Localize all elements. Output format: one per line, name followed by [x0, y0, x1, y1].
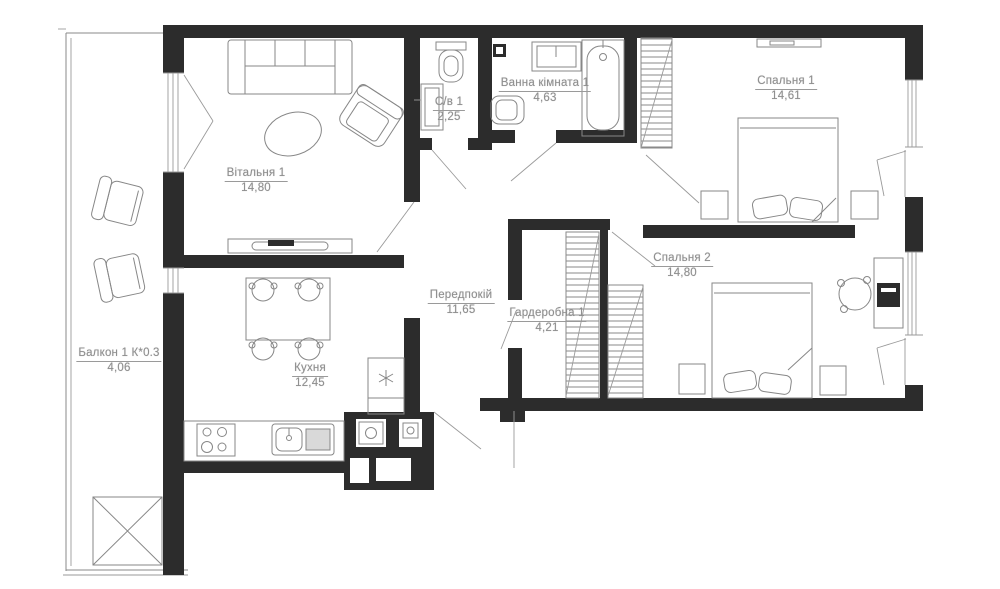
coffee-table-icon	[259, 105, 327, 163]
room-name: Гардеробна 1	[507, 307, 586, 322]
room-label-living: Вітальня 1 14,80	[225, 167, 288, 196]
kitchen-sink-icon	[272, 424, 334, 455]
room-name: Вітальня 1	[225, 167, 288, 182]
room-name: С/в 1	[433, 96, 465, 111]
room-area: 14,80	[651, 267, 713, 281]
room-name: Спальня 1	[755, 75, 817, 90]
room-area: 11,65	[428, 304, 495, 318]
window-bedroom1	[905, 80, 923, 147]
shelf-icon	[757, 39, 821, 47]
balcony-armchair-icon	[90, 175, 144, 229]
room-label-bathroom: Ванна кімната 1 4,63	[499, 77, 591, 106]
balcony-hatch-window-icon	[93, 497, 162, 565]
armchair-icon	[337, 83, 406, 150]
room-area: 4,21	[507, 322, 586, 336]
pillow-icon	[789, 197, 824, 222]
wardrobe-shelves-bedroom1	[641, 38, 672, 148]
room-label-bedroom2: Спальня 2 14,80	[651, 252, 713, 281]
room-label-wardrobe: Гардеробна 1 4,21	[507, 307, 586, 336]
room-label-balcony: Балкон 1 К*0.3 4,06	[76, 347, 161, 376]
nightstand-icon	[701, 191, 728, 219]
desk-icon	[874, 258, 903, 328]
nightstand-icon	[679, 364, 705, 394]
kitchen-chair-icon	[249, 338, 277, 360]
pillow-icon	[758, 372, 792, 395]
room-label-hallway: Передпокій 11,65	[428, 289, 495, 318]
nightstand-icon	[820, 366, 846, 395]
room-area: 4,06	[76, 362, 161, 376]
bed-icon	[712, 283, 812, 398]
walls	[163, 25, 923, 575]
bed-icon	[738, 118, 838, 222]
room-label-wc: С/в 1 2,25	[433, 96, 465, 125]
freezer-symbol-icon	[379, 370, 393, 386]
room-name: Передпокій	[428, 289, 495, 304]
balcony-door-bedroom1	[877, 150, 906, 197]
balcony-armchair-icon	[93, 251, 146, 303]
kitchen-chair-icon	[249, 279, 277, 301]
room-area: 14,80	[225, 182, 288, 196]
room-name: Кухня	[292, 362, 328, 377]
room-area: 14,61	[755, 90, 817, 104]
room-name: Балкон 1 К*0.3	[76, 347, 161, 362]
washbasin-icon	[532, 42, 581, 71]
stove-icon	[197, 424, 235, 456]
room-name: Спальня 2	[651, 252, 713, 267]
room-area: 4,63	[499, 92, 591, 106]
window-kitchen-balcony	[163, 268, 184, 293]
window-living-balcony	[163, 73, 213, 172]
room-label-bedroom1: Спальня 1 14,61	[755, 75, 817, 104]
monitor-icon	[877, 283, 900, 307]
room-label-kitchen: Кухня 12,45	[292, 362, 328, 391]
desk-chair-icon	[838, 277, 872, 313]
room-name: Ванна кімната 1	[499, 77, 591, 92]
floor-plan: Вітальня 1 14,80 Кухня 12,45 Балкон 1 К*…	[0, 0, 1000, 589]
room-area: 12,45	[292, 377, 328, 391]
tv-stand-icon	[228, 239, 352, 253]
window-bedroom2	[905, 252, 923, 335]
toilet-icon	[436, 42, 466, 82]
kitchen-chair-icon	[295, 338, 323, 360]
pillow-icon	[723, 370, 758, 394]
kitchen-chair-icon	[295, 279, 323, 301]
sofa-icon	[228, 40, 352, 94]
balcony-door-bedroom2	[877, 338, 906, 385]
room-area: 2,25	[433, 111, 465, 125]
wardrobe-shelves-bedroom2	[608, 285, 643, 398]
washing-machine-icon	[493, 44, 506, 57]
pillow-icon	[752, 194, 789, 220]
nightstand-icon	[851, 191, 878, 219]
